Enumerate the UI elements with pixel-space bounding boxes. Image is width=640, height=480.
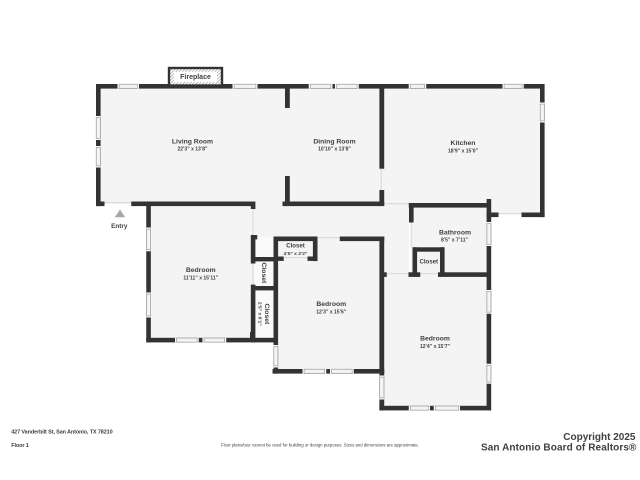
- svg-text:10’10” x 13’8”: 10’10” x 13’8”: [318, 146, 351, 152]
- svg-text:Floor plans/tour cannot be use: Floor plans/tour cannot be used for buil…: [221, 443, 419, 448]
- svg-text:Bathroom: Bathroom: [439, 230, 471, 237]
- svg-text:Copyright 2025: Copyright 2025: [563, 432, 636, 443]
- svg-text:Closet: Closet: [286, 243, 305, 250]
- svg-text:12’3” x 15’6”: 12’3” x 15’6”: [316, 309, 347, 315]
- svg-text:12’4” x 15’7”: 12’4” x 15’7”: [420, 344, 451, 350]
- svg-text:Kitchen: Kitchen: [451, 140, 476, 147]
- svg-text:Closet: Closet: [419, 259, 438, 266]
- svg-text:Floor 1: Floor 1: [11, 443, 28, 449]
- svg-text:22’3” x 13’8”: 22’3” x 13’8”: [177, 146, 208, 152]
- svg-text:Bedroom: Bedroom: [186, 267, 216, 274]
- svg-text:Fireplace: Fireplace: [180, 74, 211, 81]
- svg-text:Dining Room: Dining Room: [313, 139, 355, 146]
- svg-text:8’5” x 7’11”: 8’5” x 7’11”: [441, 238, 468, 244]
- svg-text:Closet: Closet: [263, 304, 270, 326]
- svg-text:Living Room: Living Room: [172, 139, 213, 146]
- svg-text:2’5” x 6’1”: 2’5” x 6’1”: [257, 302, 263, 326]
- svg-text:427 Vanderbilt St, San Antonio: 427 Vanderbilt St, San Antonio, TX 78210: [11, 430, 112, 436]
- svg-text:Bedroom: Bedroom: [420, 336, 450, 343]
- svg-text:Bedroom: Bedroom: [316, 301, 346, 308]
- svg-text:Entry: Entry: [111, 223, 128, 230]
- svg-text:Closet: Closet: [260, 263, 267, 285]
- svg-text:18’9” x 15’0”: 18’9” x 15’0”: [448, 148, 479, 154]
- svg-text:4’5” x 2’2”: 4’5” x 2’2”: [284, 251, 308, 257]
- svg-text:11’11” x 15’11”: 11’11” x 15’11”: [183, 276, 218, 282]
- svg-text:San Antonio Board of Realtors®: San Antonio Board of Realtors®: [481, 443, 637, 454]
